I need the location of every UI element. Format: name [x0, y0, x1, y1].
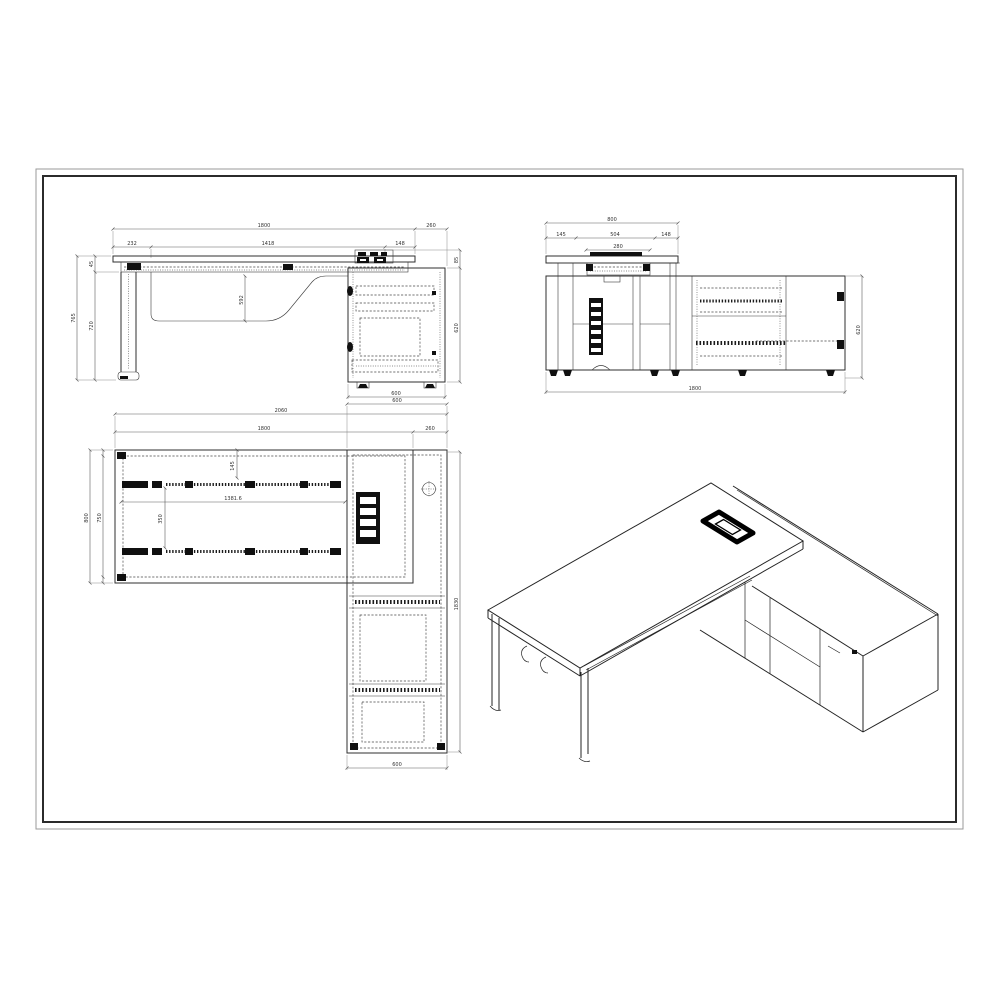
cabinet-side-body — [546, 276, 845, 376]
dim-label: 350 — [158, 514, 164, 524]
side-elevation-view: 800 145 504 148 280 — [546, 217, 862, 394]
dim-label: 620 — [454, 323, 460, 333]
dim-label: 592 — [239, 295, 245, 305]
iso-grommet — [703, 512, 753, 542]
iso-desk-top — [488, 483, 803, 676]
dim-label: 148 — [661, 232, 671, 238]
frame-beam — [122, 548, 341, 555]
desk-top — [113, 256, 415, 272]
dim-label: 504 — [610, 232, 620, 238]
dim-label: 600 — [391, 391, 401, 397]
isometric-view — [488, 483, 938, 762]
desk-leg — [118, 272, 139, 380]
dim-label: 1418 — [262, 241, 275, 247]
dim-label: 145 — [230, 461, 236, 471]
side-cabinet-front — [347, 268, 445, 388]
dim-label: 2060 — [275, 408, 288, 414]
frame-beam — [122, 481, 341, 488]
dim-label: 600 — [392, 762, 402, 768]
technical-drawing: 1800 260 232 1418 148 765 45 720 — [0, 0, 1000, 1000]
dim-label: 260 — [426, 223, 436, 229]
dim-label: 280 — [613, 244, 623, 250]
iso-desk-legs — [490, 576, 752, 762]
dim-label: 720 — [89, 321, 95, 331]
plan-view: 600 2060 1800 260 — [84, 398, 460, 770]
dim-label: 765 — [71, 313, 77, 323]
desk-top-side — [546, 252, 678, 275]
dim-label: 1830 — [454, 598, 460, 611]
cabinet-plan — [347, 450, 447, 753]
end-frame — [552, 263, 680, 370]
dim-label: 1800 — [258, 426, 271, 432]
front-elevation-view: 1800 260 232 1418 148 765 45 720 — [71, 223, 460, 399]
dim-label: 85 — [454, 257, 460, 263]
dim-label: 145 — [556, 232, 566, 238]
dim-label: 148 — [395, 241, 405, 247]
sheet-border — [36, 169, 963, 829]
modesty-panel — [151, 272, 348, 321]
dim-label: 45 — [89, 261, 95, 267]
dim-label: 800 — [84, 513, 90, 523]
dim-label: 600 — [392, 398, 402, 404]
dim-label: 1800 — [258, 223, 271, 229]
dim-label: 232 — [127, 241, 137, 247]
dim-label: 800 — [607, 217, 617, 223]
drawing-sheet: 1800 260 232 1418 148 765 45 720 — [0, 0, 1000, 1000]
dim-label: 1800 — [689, 386, 702, 392]
dim-label: 620 — [856, 325, 862, 335]
dim-label: 750 — [97, 513, 103, 523]
dim-label: 1381.6 — [224, 496, 242, 502]
dim-label: 260 — [425, 426, 435, 432]
